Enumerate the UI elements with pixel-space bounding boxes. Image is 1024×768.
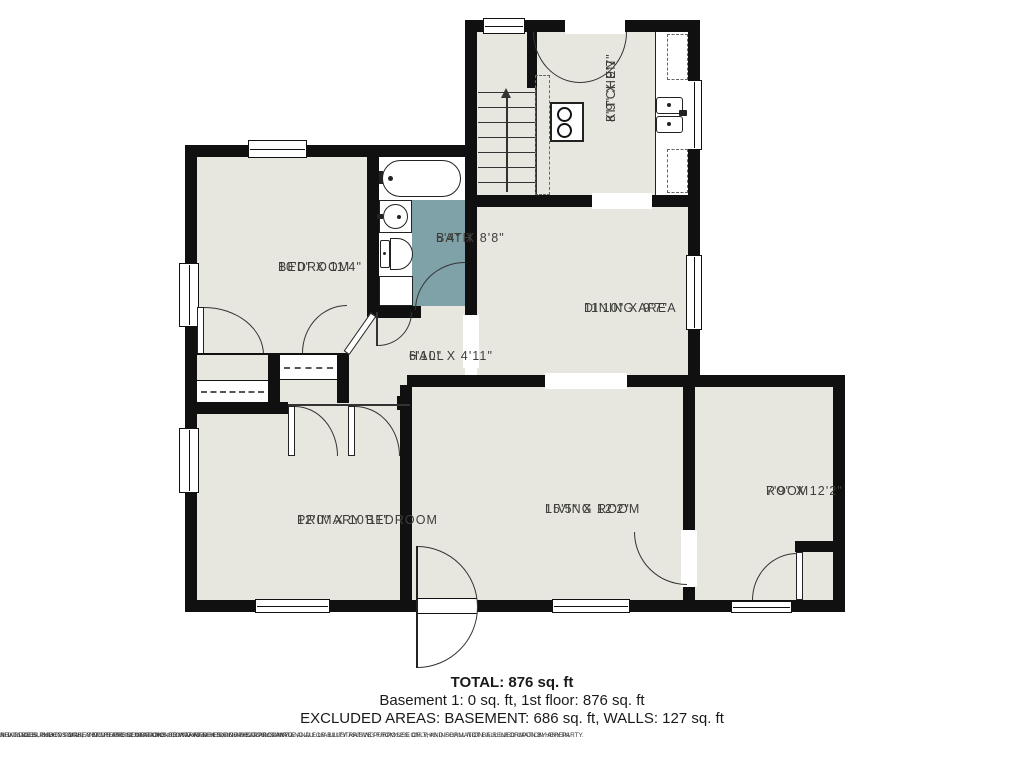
window-bedroom-left bbox=[179, 263, 199, 327]
summary-footer: TOTAL: 876 sq. ft Basement 1: 0 sq. ft, … bbox=[0, 674, 1024, 732]
floor-areas-text: Basement 1: 0 sq. ft, 1st floor: 876 sq.… bbox=[0, 692, 1024, 710]
wall-primary-living-divider bbox=[400, 385, 412, 600]
dining-floor bbox=[477, 207, 688, 375]
kitchen-cabinet-dashed bbox=[535, 75, 550, 195]
stair-direction-arrow bbox=[506, 98, 508, 192]
wall-hall-left bbox=[337, 353, 349, 403]
door-leaf-bedroom-closet bbox=[197, 307, 204, 355]
wall-bedroom-top bbox=[185, 145, 465, 157]
tub-drain-icon bbox=[388, 176, 393, 181]
room-dims: 12'0" X 10'11" bbox=[297, 510, 389, 530]
bath-sink-fixture bbox=[383, 204, 408, 229]
burner-icon bbox=[557, 107, 572, 122]
window-dining-right bbox=[686, 255, 702, 330]
opening-kitchen-dining bbox=[592, 193, 652, 209]
wall-room-closet-top bbox=[795, 541, 833, 552]
room-dims: 10'0" X 11'4" bbox=[278, 257, 362, 277]
closet-a-front-line bbox=[197, 353, 268, 355]
room-dims: 11'10" X 9'7" bbox=[584, 298, 668, 318]
window-bedroom-top bbox=[248, 140, 307, 158]
room-dims: 5'4" X 8'8" bbox=[436, 228, 505, 248]
opening-dining-living bbox=[545, 373, 627, 389]
window-kitchen-right bbox=[686, 80, 702, 150]
bathtub-fixture bbox=[382, 160, 461, 197]
wall-primary-top bbox=[185, 402, 288, 414]
sink-tap-icon bbox=[377, 214, 383, 219]
window-room-bottom bbox=[731, 601, 792, 613]
door-leaf-room bbox=[796, 552, 803, 600]
room-dims: 7'9" X 12'2" bbox=[766, 481, 843, 501]
room-dims: 15'5" X 12'2" bbox=[545, 499, 630, 519]
wall-kitchen-bottom bbox=[465, 195, 700, 207]
burner-icon bbox=[557, 123, 572, 138]
wall-room-top bbox=[695, 375, 845, 387]
bath-linen-closet bbox=[379, 276, 413, 306]
door-leaf-primary-left bbox=[288, 406, 295, 456]
kitchen-tap-icon bbox=[679, 110, 687, 116]
disclaimer-line-3: SHALL BE SUBJECT TO THE TERMS AND CONDIT… bbox=[0, 732, 294, 740]
window-primary-bottom bbox=[255, 599, 330, 613]
kitchen-upper-cabinet-dashed bbox=[667, 149, 688, 193]
floor-plan-canvas: KITCHEN 8'9" X 9'7" BATH 5'4" X 8'8" BED… bbox=[0, 0, 1024, 768]
excluded-areas-text: EXCLUDED AREAS: BASEMENT: 686 sq. ft, WA… bbox=[0, 710, 1024, 728]
wall-bath-left bbox=[367, 157, 379, 318]
tub-faucet-icon bbox=[379, 171, 383, 184]
faucet-dot-icon bbox=[667, 103, 671, 107]
kitchen-upper-cabinet-dashed bbox=[667, 34, 688, 80]
window-primary-left bbox=[179, 428, 199, 493]
window-kitchen-top bbox=[483, 18, 525, 34]
wall-left-outer bbox=[185, 145, 197, 612]
faucet-dot-icon bbox=[667, 122, 671, 126]
window-living-bottom bbox=[552, 599, 630, 613]
toilet-flush-icon bbox=[383, 252, 386, 255]
room-dims: 6'10" X 4'11" bbox=[409, 346, 493, 366]
closet-a-rod-dashed bbox=[201, 391, 264, 393]
faucet-dot-icon bbox=[397, 215, 401, 219]
total-area-text: TOTAL: 876 sq. ft bbox=[0, 674, 1024, 692]
room-dims: 8'9" X 9'7" bbox=[601, 53, 621, 122]
door-leaf-primary-right bbox=[348, 406, 355, 456]
door-leaf-front-door bbox=[416, 546, 418, 668]
stair-arrowhead-icon bbox=[501, 88, 511, 98]
closet-b-rod-dashed bbox=[284, 367, 333, 369]
stove-fixture bbox=[550, 102, 584, 142]
